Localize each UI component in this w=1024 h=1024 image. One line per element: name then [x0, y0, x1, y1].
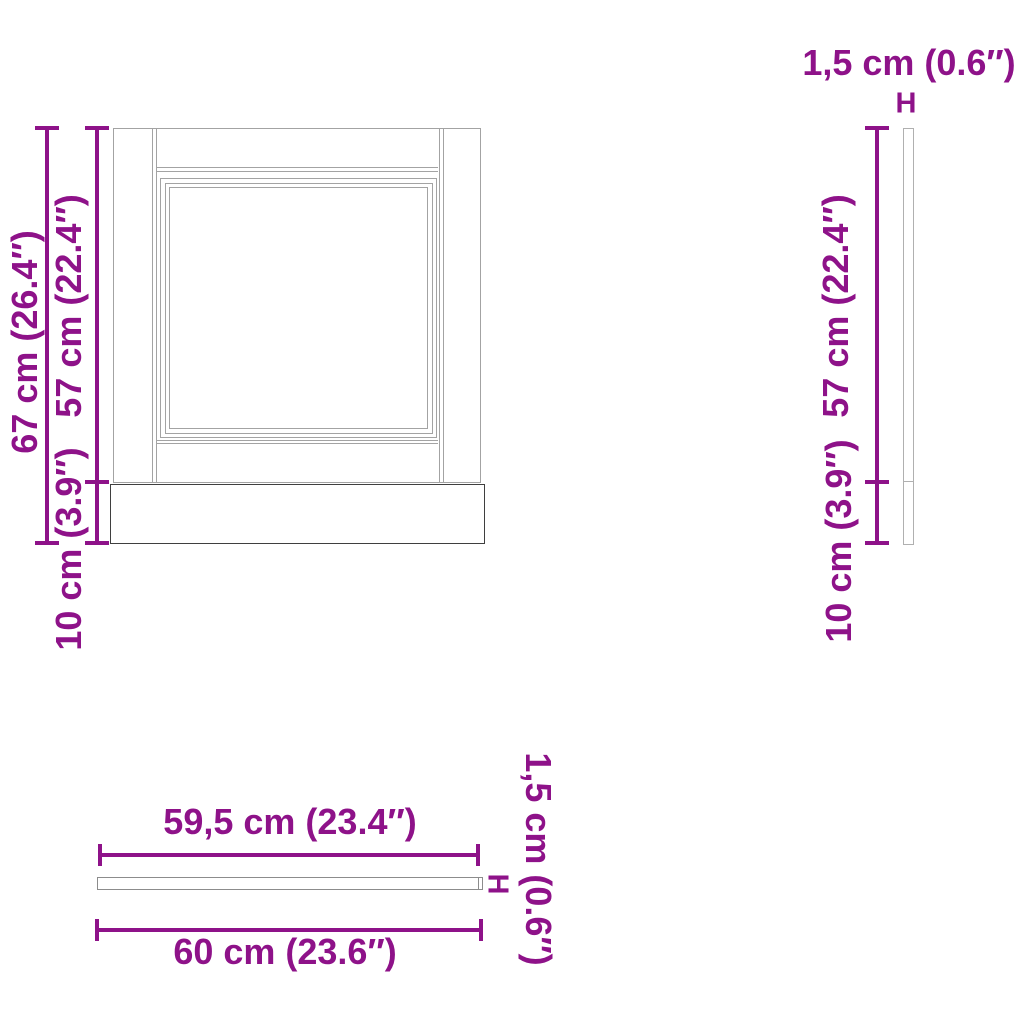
top-panel-width-right-tick — [476, 844, 480, 866]
front-top-rail-line — [157, 171, 438, 172]
side-plinth-height-label: 10 cm (3.9″) — [821, 439, 857, 642]
top-panel-outline — [97, 877, 483, 890]
side-panel-outline — [903, 128, 914, 545]
front-total-height-label: 67 cm (26.4″) — [7, 230, 43, 453]
front-bottom-rail-line — [157, 443, 438, 444]
front-left-stile-line — [156, 129, 157, 482]
top-total-width-left-tick — [95, 919, 99, 941]
front-door-height-label: 57 cm (22.4″) — [51, 194, 87, 417]
dimension-diagram: 67 cm (26.4″) 57 cm (22.4″) 10 cm (3.9″)… — [0, 0, 1024, 1024]
front-right-stile-line — [443, 129, 444, 482]
side-panel-divider-line — [904, 481, 913, 482]
top-thickness-h-marker: H — [483, 874, 512, 895]
side-height-top-tick — [865, 126, 889, 130]
front-total-height-top-tick — [35, 126, 59, 130]
side-height-bottom-tick — [865, 541, 889, 545]
top-panel-width-label: 59,5 cm (23.4″) — [163, 804, 416, 840]
side-thickness-h-marker: H — [896, 90, 917, 119]
top-panel-divider-line — [478, 878, 479, 889]
side-height-middle-tick — [865, 480, 889, 484]
front-panel-molding-inner — [169, 187, 428, 429]
side-thickness-label: 1,5 cm (0.6″) — [802, 45, 1015, 81]
front-bottom-rail-line — [157, 440, 438, 441]
front-left-stile-line — [152, 129, 153, 482]
front-top-rail-line — [157, 167, 438, 168]
side-door-height-label: 57 cm (22.4″) — [818, 194, 854, 417]
front-door-height-top-tick — [85, 126, 109, 130]
top-panel-width-left-tick — [98, 844, 102, 866]
top-total-width-right-tick — [479, 919, 483, 941]
front-plinth-outline — [110, 484, 485, 544]
front-right-stile-line — [439, 129, 440, 482]
top-total-width-label: 60 cm (23.6″) — [173, 934, 396, 970]
front-plinth-height-label: 10 cm (3.9″) — [51, 447, 87, 650]
top-thickness-label: 1,5 cm (0.6″) — [520, 752, 556, 965]
top-panel-width-dim-line — [100, 853, 478, 857]
